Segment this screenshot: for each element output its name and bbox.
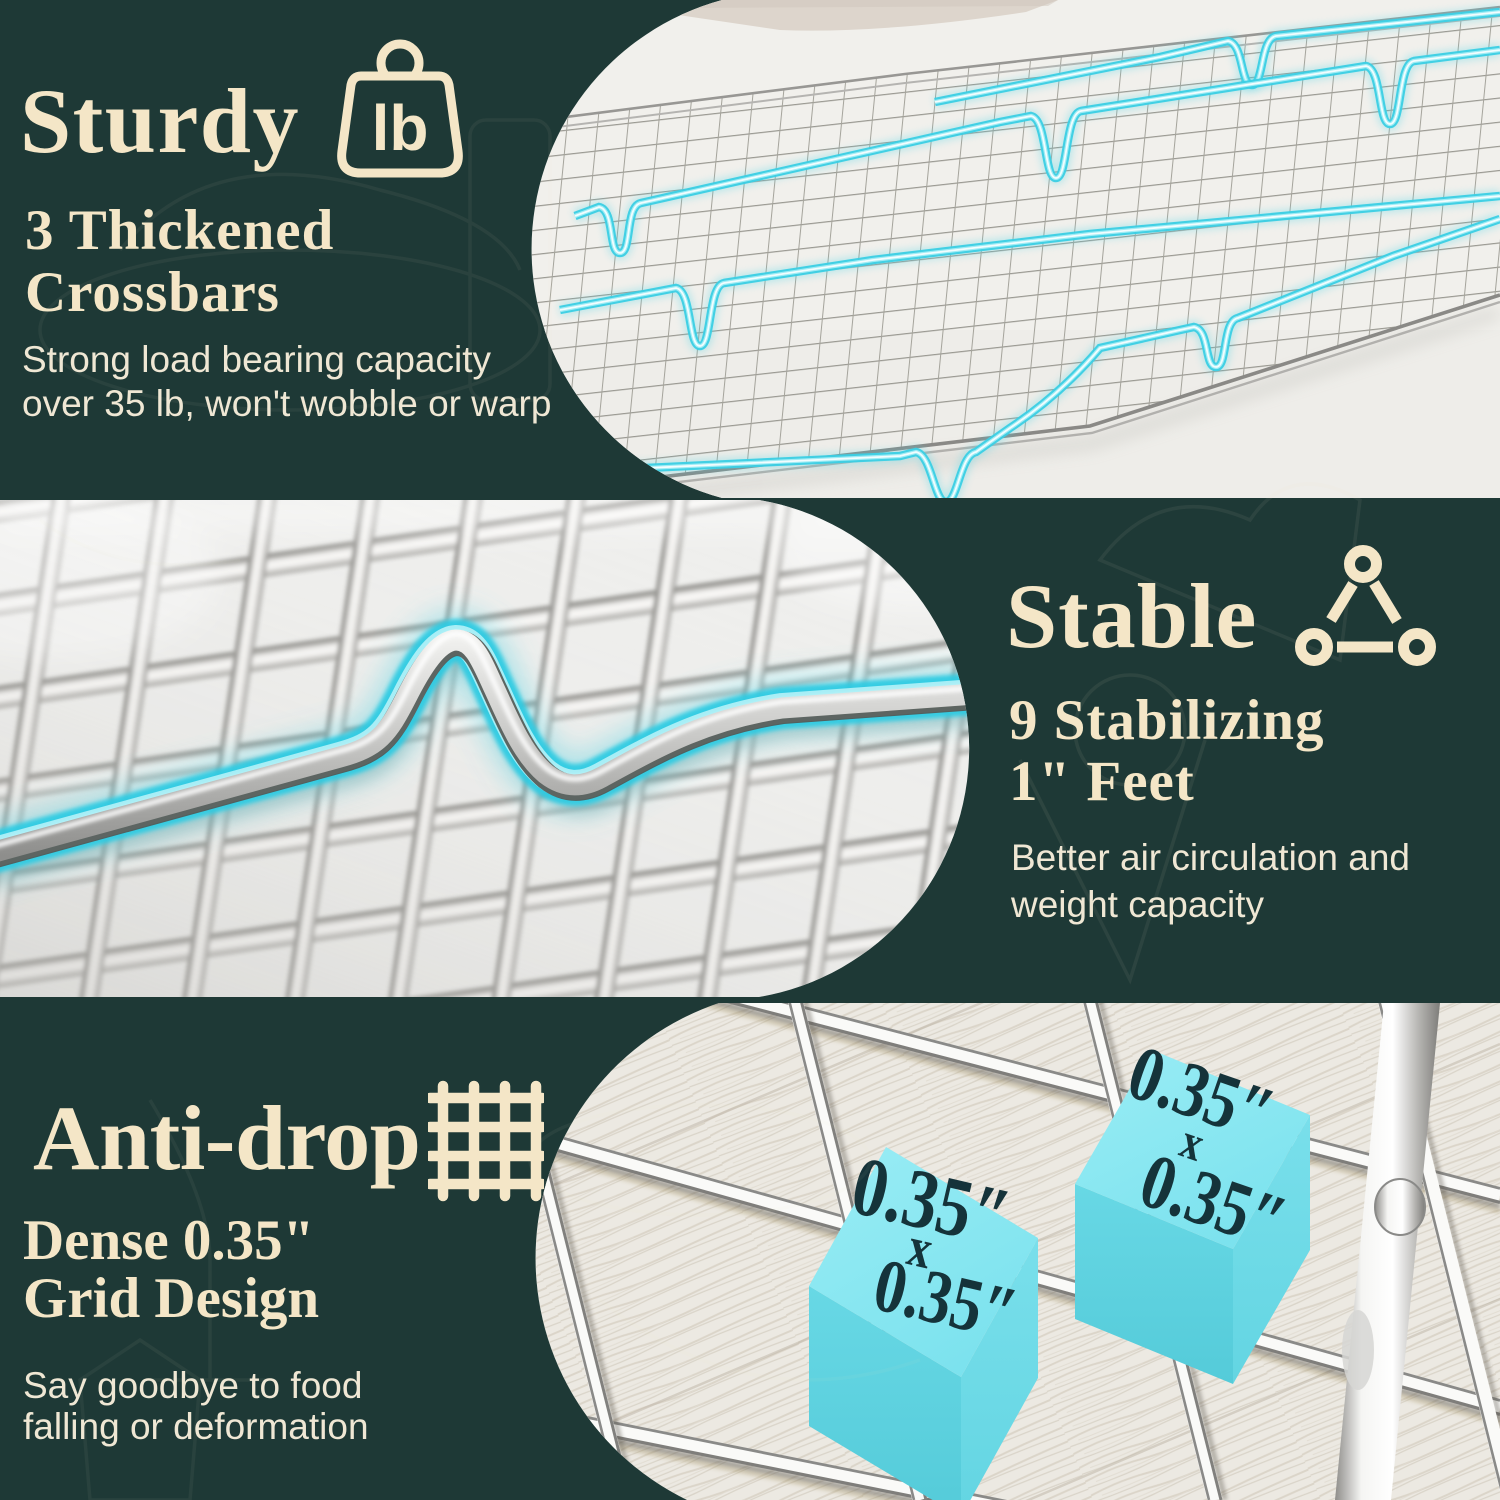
svg-text:lb: lb (372, 92, 429, 164)
